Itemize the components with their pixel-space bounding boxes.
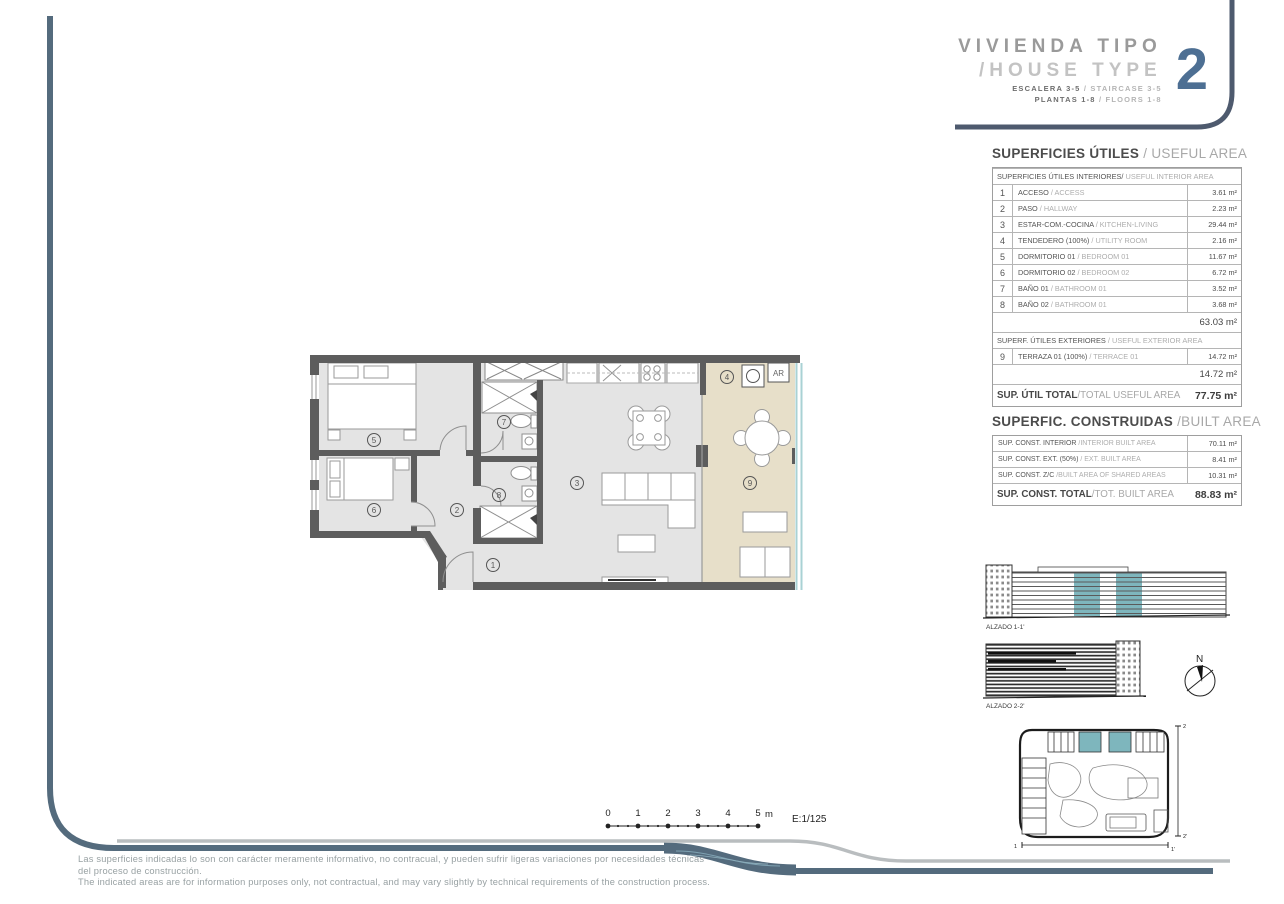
svg-text:1: 1 [635, 808, 640, 819]
house-type-number: 2 [1176, 42, 1208, 97]
disclaimer: Las superficies indicadas lo son con car… [78, 854, 1208, 889]
title-sub1: ESCALERA 3-5 / STAIRCASE 3-5 [958, 84, 1162, 93]
table-row: SUP. CONST. EXT. (50%) / EXT. BUILT AREA… [993, 451, 1241, 467]
useful-area-title: SUPERFICIES ÚTILES / USEFUL AREA [992, 146, 1247, 161]
bed-double [328, 363, 416, 440]
north-label: N [1196, 654, 1203, 665]
washing-machine-icon [742, 365, 764, 387]
table-row: SUP. CONST. INTERIOR /INTERIOR BUILT ARE… [993, 436, 1241, 451]
svg-text:2: 2 [455, 506, 460, 515]
table-row: 7 BAÑO 01 / BATHROOM 01 3.52 m² [993, 280, 1241, 296]
marker-1-left: 1 [1014, 844, 1017, 850]
svg-text:0: 0 [605, 808, 610, 819]
svg-text:4: 4 [725, 373, 730, 382]
scale-bar: 0 1 2 3 4 5 m E:1/125 [592, 802, 852, 838]
table-row: SUP. CONST. Z/C /BUILT AREA OF SHARED AR… [993, 467, 1241, 483]
elevation-2-label: ALZADO 2-2' [986, 703, 1024, 710]
disclaimer-en: The indicated areas are for information … [78, 877, 1208, 889]
sub2-slash: / [1099, 95, 1102, 104]
site-plan: 2 2' 1 1' [1008, 718, 1193, 852]
ar-label: AR [773, 369, 784, 378]
useful-area-table: SUPERFICIES ÚTILES INTERIORES/ USEFUL IN… [992, 167, 1242, 407]
title-block: VIVIENDA TIPO /HOUSE TYPE ESCALERA 3-5 /… [940, 36, 1208, 104]
table-row: 5 DORMITORIO 01 / BEDROOM 01 11.67 m² [993, 248, 1241, 264]
title-en: /HOUSE TYPE [958, 60, 1162, 82]
scale-numbers: 0 1 2 3 4 5 m [605, 808, 773, 820]
built-title-es: SUPERFIC. CONSTRUIDAS [992, 414, 1177, 429]
svg-text:5: 5 [372, 436, 377, 445]
scale-ratio: E:1/125 [792, 814, 827, 825]
floor-plan: AR [300, 350, 810, 610]
sub2-es: PLANTAS 1-8 [1035, 95, 1096, 104]
elevation-1: ALZADO 1-1' [983, 565, 1230, 631]
table-row: 2 PASO / HALLWAY 2.23 m² [993, 200, 1241, 216]
sub1-en: STAIRCASE 3-5 [1090, 84, 1161, 93]
table-row: 6 DORMITORIO 02 / BEDROOM 02 6.72 m² [993, 264, 1241, 280]
built-area-table: SUP. CONST. INTERIOR /INTERIOR BUILT ARE… [992, 435, 1242, 506]
dining-table [628, 406, 670, 450]
wardrobe-closet [485, 361, 563, 380]
useful-title-es: SUPERFICIES ÚTILES [992, 146, 1143, 161]
built-area-section: SUPERFIC. CONSTRUIDAS /BUILT AREA SUP. C… [992, 414, 1261, 506]
table-row: 4 TENDEDERO (100%) / UTILITY ROOM 2.16 m… [993, 232, 1241, 248]
useful-title-en: / USEFUL AREA [1143, 146, 1247, 161]
elevation-1-label: ALZADO 1-1' [986, 624, 1024, 631]
interior-subtotal: 63.03 m² [993, 312, 1241, 332]
site-highlight-2 [1109, 732, 1131, 752]
sub1-slash: / [1084, 84, 1087, 93]
elevation-drawings: ALZADO 1-1' ALZADO 2-2' N [978, 556, 1240, 724]
sub2-en: FLOORS 1-8 [1106, 95, 1162, 104]
table-row: 8 BAÑO 02 / BATHROOM 01 3.68 m² [993, 296, 1241, 312]
table-row: 9 TERRAZA 01 (100%) / TERRACE 01 14.72 m… [993, 348, 1241, 364]
svg-text:3: 3 [695, 808, 700, 819]
svg-text:6: 6 [372, 506, 377, 515]
svg-text:2: 2 [665, 808, 670, 819]
elevation-2: ALZADO 2-2' [983, 641, 1146, 710]
marker-2-top: 2 [1183, 724, 1186, 730]
svg-text:7: 7 [502, 418, 507, 427]
table-row: 3 ESTAR-COM.-COCINA / KITCHEN-LIVING 29.… [993, 216, 1241, 232]
interior-header: SUPERFICIES ÚTILES INTERIORES/ USEFUL IN… [993, 168, 1241, 184]
disclaimer-es-line1: Las superficies indicadas lo son con car… [78, 854, 1208, 866]
sub1-es: ESCALERA 3-5 [1012, 84, 1080, 93]
plan-sheet: VIVIENDA TIPO /HOUSE TYPE ESCALERA 3-5 /… [0, 0, 1284, 904]
disclaimer-es-line2: del proceso de construcción. [78, 866, 1208, 878]
svg-text:8: 8 [497, 491, 502, 500]
north-arrow-icon: N [1185, 654, 1215, 696]
svg-text:5: 5 [755, 808, 760, 819]
marker-2-bottom: 2' [1183, 834, 1187, 840]
marker-1-right: 1' [1171, 847, 1175, 852]
svg-text:3: 3 [575, 479, 580, 488]
svg-text:1: 1 [491, 561, 496, 570]
useful-area-section: SUPERFICIES ÚTILES / USEFUL AREA SUPERFI… [992, 146, 1247, 407]
site-building-left [1022, 758, 1046, 834]
svg-text:9: 9 [748, 479, 753, 488]
built-area-title: SUPERFIC. CONSTRUIDAS /BUILT AREA [992, 414, 1261, 429]
exterior-subtotal: 14.72 m² [993, 364, 1241, 384]
kitchen-counter [567, 363, 698, 383]
svg-text:4: 4 [725, 808, 730, 819]
title-text: VIVIENDA TIPO /HOUSE TYPE ESCALERA 3-5 /… [958, 36, 1162, 104]
site-highlight-1 [1079, 732, 1101, 752]
useful-total-row: SUP. ÚTIL TOTAL/TOTAL USEFUL AREA 77.75 … [993, 384, 1241, 406]
title-es: VIVIENDA TIPO [958, 36, 1162, 58]
built-title-en: /BUILT AREA [1177, 414, 1261, 429]
scale-unit: m [765, 809, 773, 820]
table-row: 1 ACCESO / ACCESS 3.61 m² [993, 184, 1241, 200]
title-sub2: PLANTAS 1-8 / FLOORS 1-8 [958, 95, 1162, 104]
built-total-row: SUP. CONST. TOTAL/TOT. BUILT AREA 88.83 … [993, 483, 1241, 505]
exterior-header: SUPERF. ÚTILES EXTERIORES / USEFUL EXTER… [993, 332, 1241, 348]
